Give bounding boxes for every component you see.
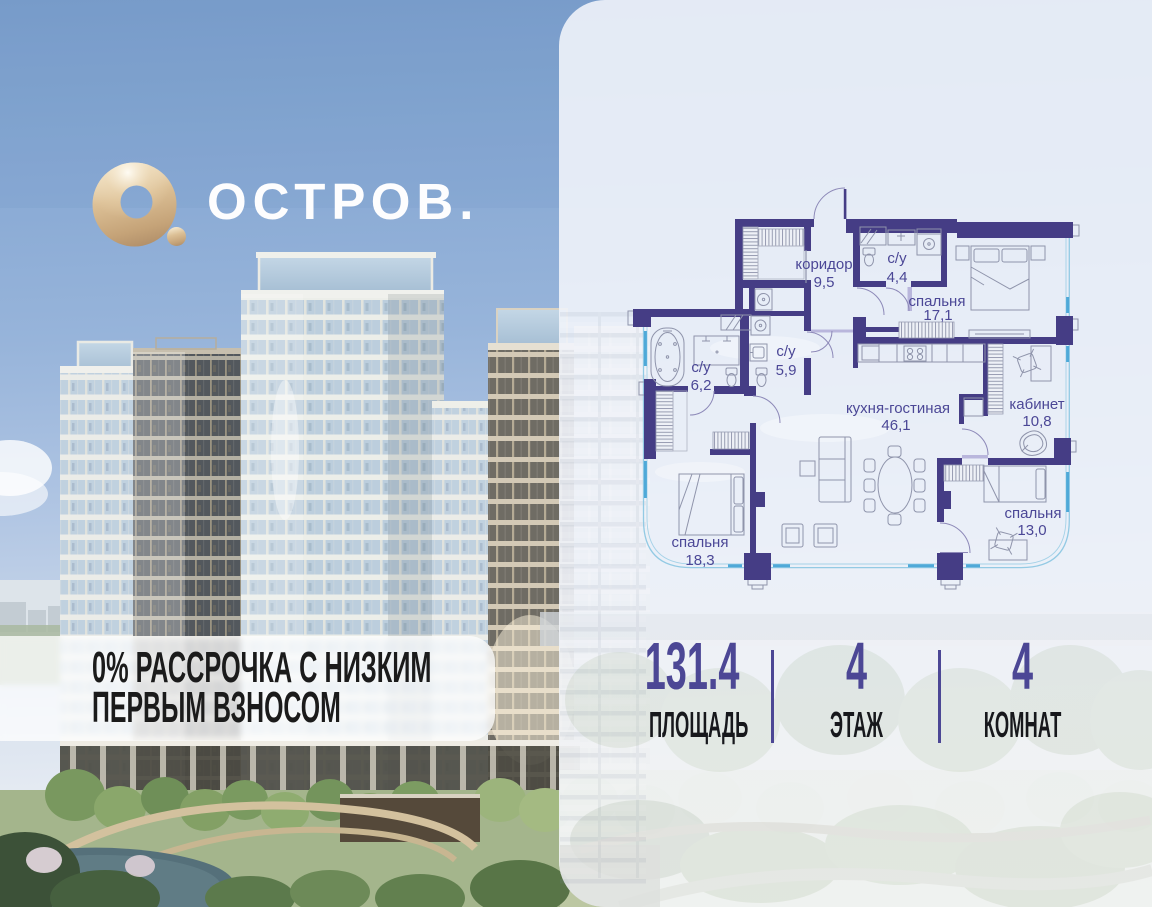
svg-text:18,3: 18,3 <box>685 552 714 569</box>
svg-text:46,1: 46,1 <box>881 417 910 434</box>
svg-text:6,2: 6,2 <box>691 377 712 394</box>
svg-text:коридор: коридор <box>795 256 852 273</box>
svg-text:9,5: 9,5 <box>814 274 835 291</box>
svg-text:кабинет: кабинет <box>1009 396 1064 413</box>
svg-text:13,0: 13,0 <box>1017 522 1046 539</box>
svg-text:с/у: с/у <box>776 343 796 360</box>
svg-text:спальня: спальня <box>1005 505 1062 522</box>
svg-text:спальня: спальня <box>672 534 729 551</box>
svg-text:17,1: 17,1 <box>923 307 952 324</box>
svg-text:с/у: с/у <box>887 250 907 267</box>
svg-text:5,9: 5,9 <box>776 362 797 379</box>
svg-text:4,4: 4,4 <box>887 269 908 286</box>
svg-text:с/у: с/у <box>691 359 711 376</box>
svg-text:кухня-гостиная: кухня-гостиная <box>846 400 950 417</box>
svg-text:10,8: 10,8 <box>1022 413 1051 430</box>
